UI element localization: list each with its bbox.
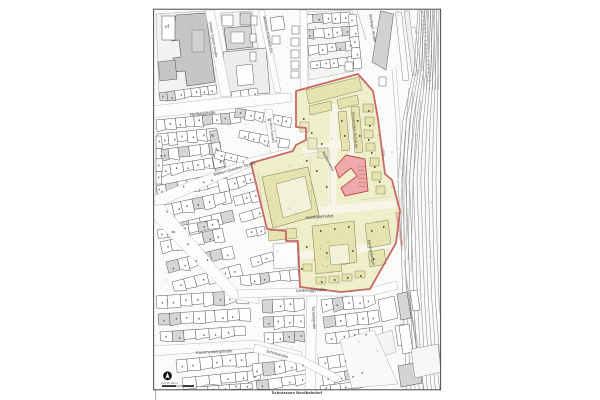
svg-text:Schutzzone Nordbahnhof: Schutzzone Nordbahnhof [272,391,323,395]
